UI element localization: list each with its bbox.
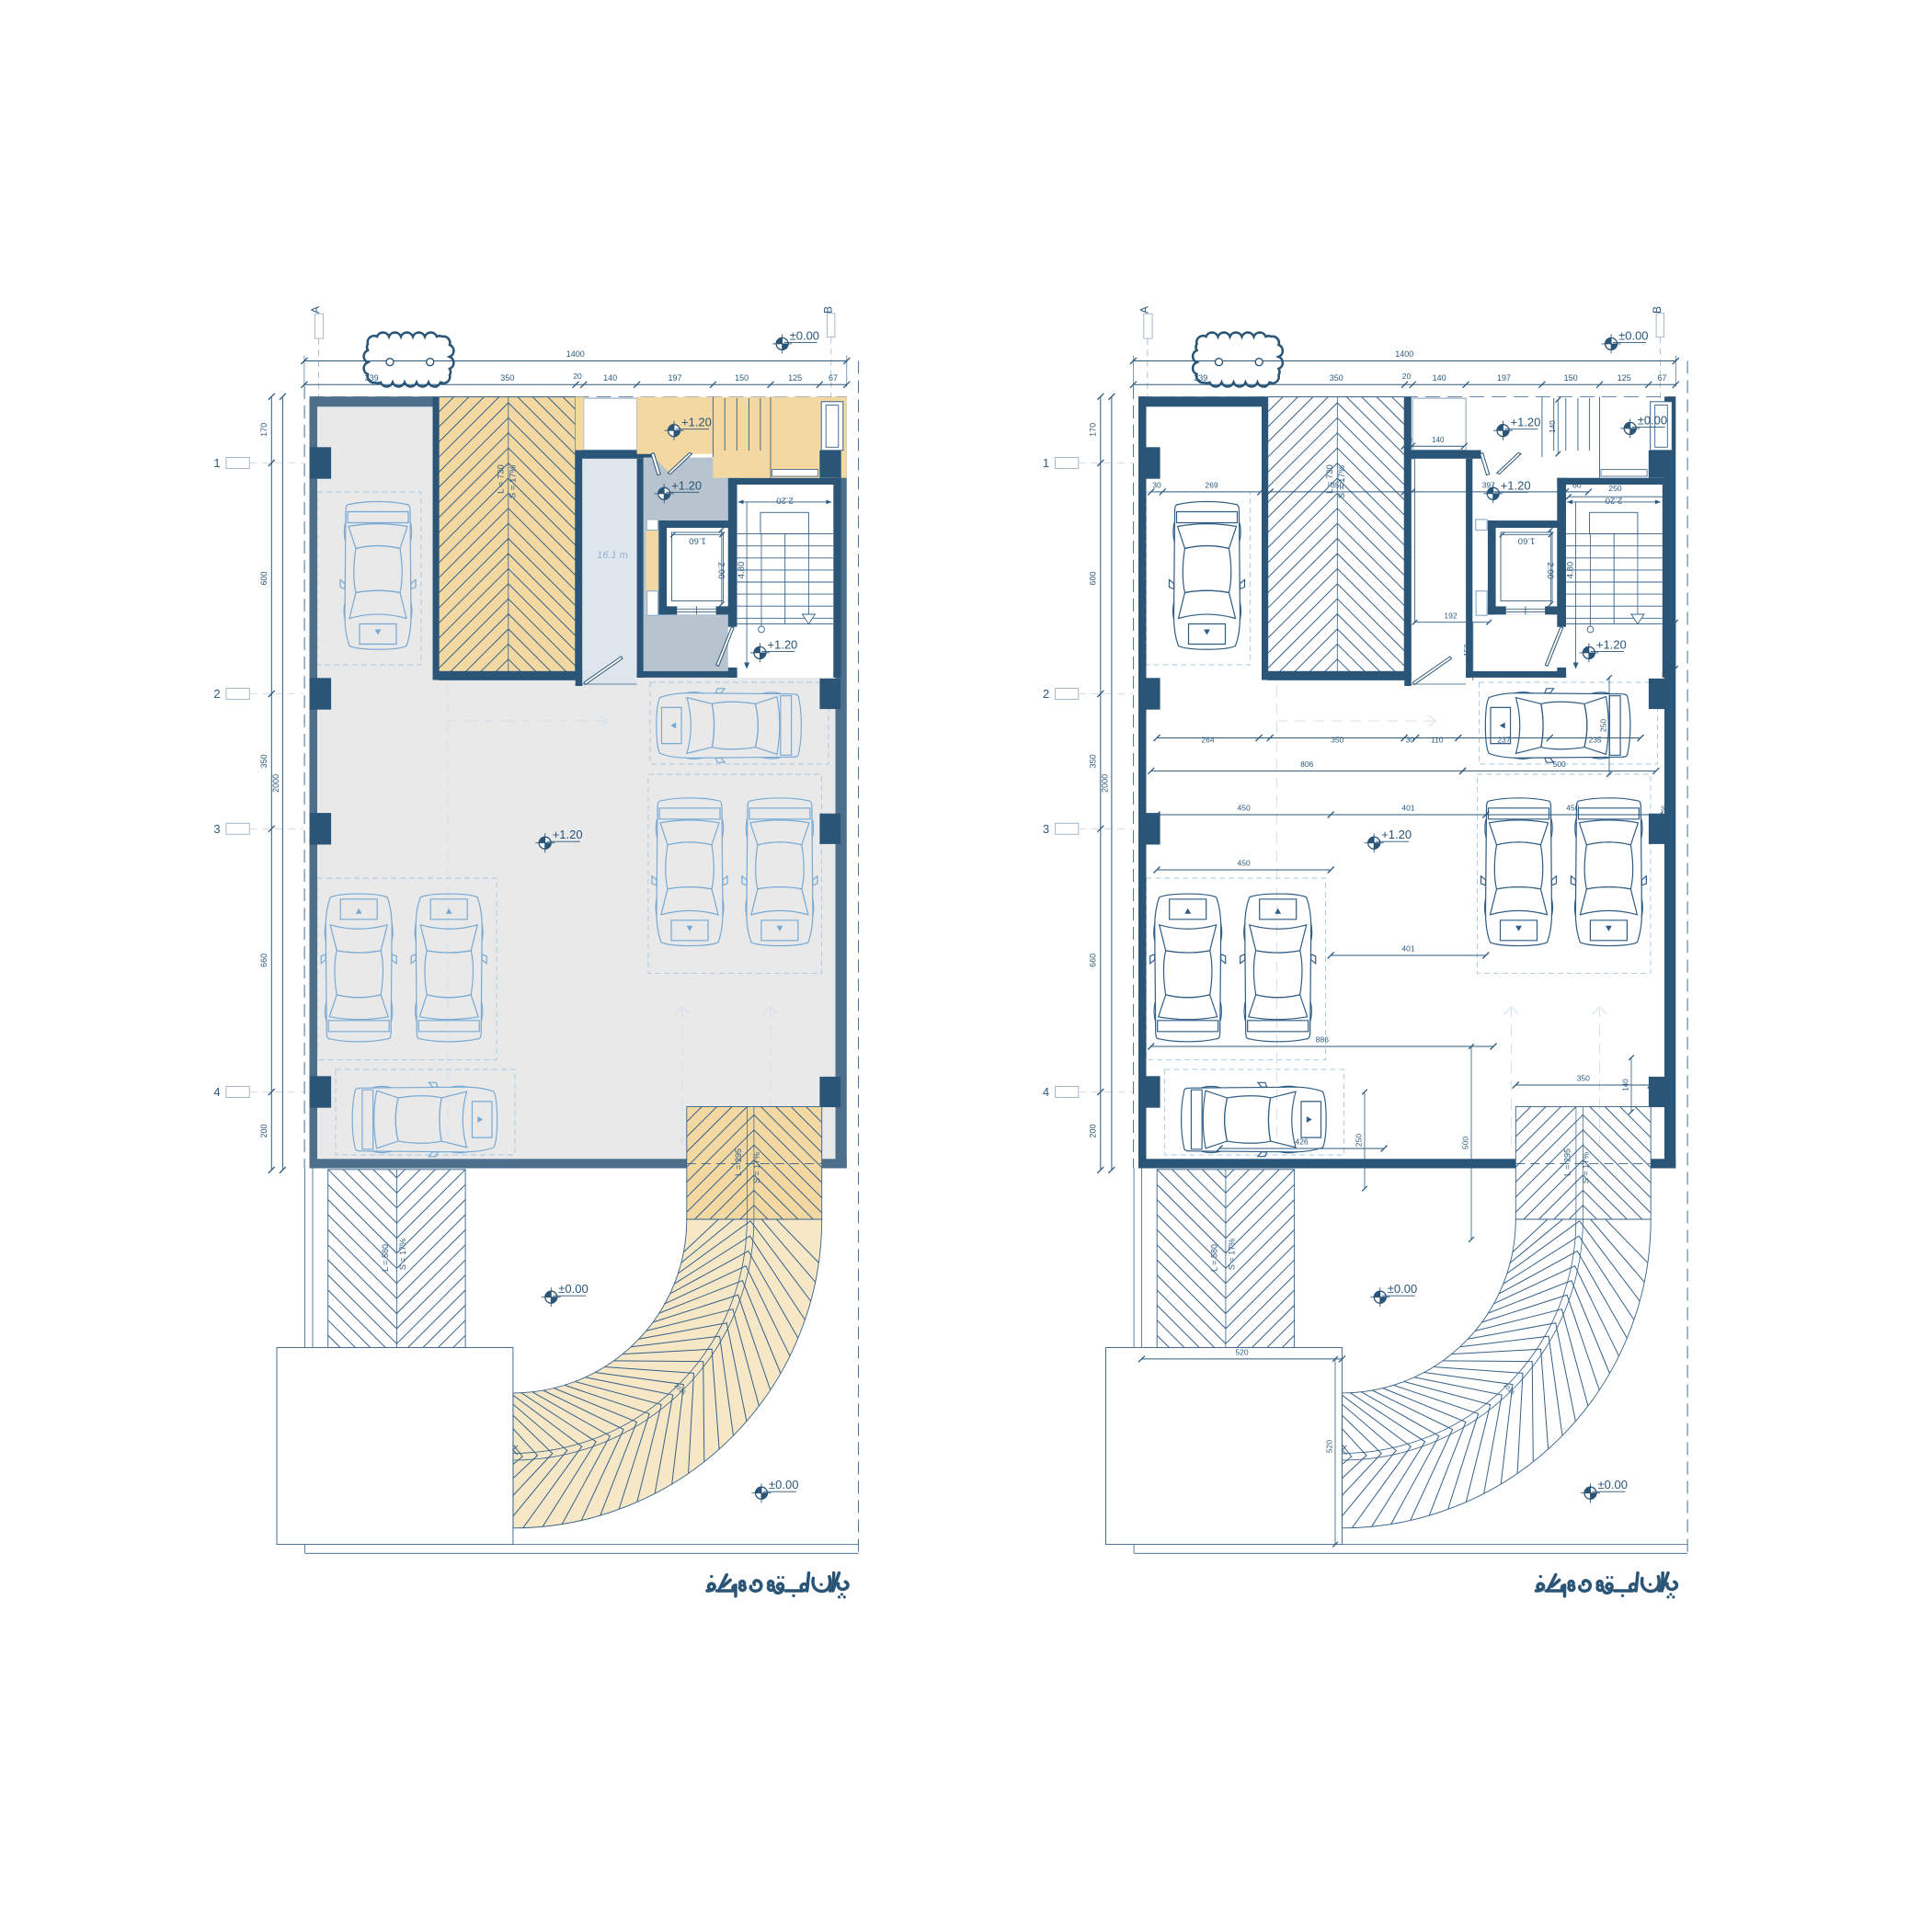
- svg-text:192: 192: [1444, 611, 1457, 621]
- svg-text:886: 886: [1316, 1035, 1329, 1045]
- svg-text:4: 4: [1043, 1085, 1049, 1099]
- svg-text:1.60: 1.60: [1518, 536, 1536, 546]
- svg-text:20: 20: [1404, 436, 1412, 444]
- svg-text:401: 401: [1401, 944, 1414, 954]
- svg-text:170: 170: [1089, 423, 1098, 437]
- svg-text:1400: 1400: [1395, 349, 1413, 359]
- svg-text:±0.00: ±0.00: [790, 328, 819, 342]
- svg-text:67: 67: [1657, 373, 1666, 383]
- svg-text:4.80: 4.80: [737, 562, 747, 579]
- svg-text:110: 110: [1431, 736, 1444, 745]
- svg-text:170: 170: [259, 423, 269, 437]
- svg-text:1.60: 1.60: [689, 536, 706, 546]
- svg-text:1400: 1400: [566, 349, 585, 359]
- svg-text:200: 200: [1089, 1124, 1098, 1137]
- svg-text:S = 17%: S = 17%: [509, 464, 519, 498]
- svg-text:4: 4: [213, 1085, 220, 1099]
- svg-text:520: 520: [1325, 1440, 1334, 1453]
- svg-text:350: 350: [1577, 1074, 1590, 1083]
- svg-text:±0.00: ±0.00: [1388, 1282, 1417, 1296]
- svg-text:60: 60: [1572, 481, 1582, 490]
- svg-text:140: 140: [1432, 436, 1445, 444]
- svg-text:397: 397: [1482, 481, 1495, 490]
- svg-text:235: 235: [1589, 736, 1602, 745]
- svg-text:+1.20: +1.20: [671, 478, 702, 492]
- svg-text:1: 1: [1043, 456, 1049, 470]
- svg-text:2: 2: [213, 687, 220, 701]
- svg-text:2.00: 2.00: [716, 562, 726, 579]
- svg-text:660: 660: [1089, 954, 1098, 967]
- svg-text:20: 20: [573, 371, 582, 381]
- svg-text:1: 1: [213, 456, 220, 470]
- svg-text:350: 350: [500, 373, 514, 383]
- svg-text:450: 450: [1566, 804, 1579, 813]
- svg-text:401: 401: [1401, 804, 1414, 813]
- svg-text:±0.00: ±0.00: [1598, 1478, 1628, 1491]
- svg-text:+1.20: +1.20: [1501, 478, 1531, 492]
- svg-text:35: 35: [1661, 805, 1668, 813]
- svg-text:140: 140: [603, 373, 617, 383]
- svg-text:67: 67: [829, 373, 838, 383]
- svg-text:269: 269: [1205, 481, 1218, 490]
- svg-text:3: 3: [1043, 822, 1049, 836]
- svg-text:600: 600: [259, 571, 269, 585]
- svg-text:550: 550: [1404, 545, 1413, 558]
- svg-text:+1.20: +1.20: [553, 828, 583, 841]
- svg-text:250: 250: [1355, 1134, 1364, 1147]
- svg-text:350: 350: [259, 754, 269, 768]
- svg-text:125: 125: [1618, 373, 1631, 383]
- svg-text:20: 20: [1402, 371, 1412, 381]
- svg-text:30: 30: [1406, 736, 1415, 745]
- svg-text:B: B: [821, 306, 834, 314]
- svg-text:S = 17%: S = 17%: [1582, 1152, 1591, 1183]
- svg-text:450: 450: [1238, 804, 1251, 813]
- svg-text:250: 250: [1608, 484, 1621, 493]
- svg-text:+1.20: +1.20: [1381, 828, 1412, 841]
- svg-text:2000: 2000: [1101, 774, 1110, 793]
- svg-text:±0.00: ±0.00: [1618, 328, 1648, 342]
- svg-text:140: 140: [1549, 420, 1557, 433]
- svg-text:±0.00: ±0.00: [1638, 413, 1667, 427]
- svg-text:A: A: [1137, 306, 1150, 314]
- svg-text:16.1 m: 16.1 m: [597, 550, 628, 561]
- svg-text:250: 250: [1599, 719, 1608, 732]
- svg-text:2000: 2000: [271, 774, 280, 793]
- svg-text:125: 125: [788, 373, 802, 383]
- svg-text:±0.00: ±0.00: [769, 1478, 798, 1491]
- svg-text:2.00: 2.00: [1545, 562, 1555, 579]
- svg-text:L = 580: L = 580: [381, 1244, 390, 1272]
- svg-text:426: 426: [1295, 1137, 1308, 1147]
- svg-text:120: 120: [1666, 643, 1675, 656]
- svg-text:30: 30: [1152, 481, 1161, 490]
- svg-text:197: 197: [668, 373, 681, 383]
- svg-text:660: 660: [259, 954, 269, 967]
- svg-text:+1.20: +1.20: [681, 416, 712, 429]
- svg-text:A: A: [309, 306, 322, 314]
- svg-text:150: 150: [1463, 644, 1471, 657]
- svg-text:+1.20: +1.20: [767, 637, 797, 651]
- svg-text:264: 264: [1201, 736, 1214, 745]
- svg-text:L = 580: L = 580: [1210, 1244, 1219, 1272]
- svg-text:500: 500: [1553, 760, 1566, 769]
- svg-text:500: 500: [1461, 1137, 1470, 1149]
- svg-text:±0.00: ±0.00: [558, 1282, 588, 1296]
- svg-text:197: 197: [1497, 373, 1511, 383]
- svg-text:350: 350: [1089, 754, 1098, 768]
- svg-text:S = 17%: S = 17%: [752, 1152, 761, 1183]
- svg-text:600: 600: [1089, 571, 1098, 585]
- svg-text:3: 3: [213, 822, 220, 836]
- svg-text:520: 520: [1235, 1348, 1248, 1357]
- svg-text:450: 450: [1238, 859, 1251, 868]
- svg-text:140: 140: [1433, 373, 1446, 383]
- svg-text:350: 350: [1331, 736, 1343, 745]
- svg-text:150: 150: [1564, 373, 1578, 383]
- svg-text:237: 237: [1497, 736, 1510, 745]
- svg-text:+1.20: +1.20: [1596, 637, 1627, 651]
- svg-text:350: 350: [1330, 373, 1343, 383]
- svg-text:2: 2: [1043, 687, 1049, 701]
- svg-text:2.20: 2.20: [776, 496, 794, 506]
- svg-text:150: 150: [735, 373, 749, 383]
- svg-text:S = 17%: S = 17%: [398, 1239, 407, 1270]
- svg-text:L = 295: L = 295: [734, 1148, 743, 1176]
- svg-text:B: B: [1651, 306, 1663, 314]
- svg-text:L = 295: L = 295: [1563, 1148, 1572, 1176]
- svg-text:+1.20: +1.20: [1511, 416, 1541, 429]
- svg-text:L = 730: L = 730: [497, 464, 507, 494]
- svg-text:S = 17%: S = 17%: [1228, 1239, 1237, 1270]
- svg-text:200: 200: [259, 1124, 269, 1137]
- svg-text:806: 806: [1300, 760, 1313, 769]
- svg-text:4.80: 4.80: [1566, 562, 1576, 579]
- svg-text:350: 350: [1331, 481, 1343, 490]
